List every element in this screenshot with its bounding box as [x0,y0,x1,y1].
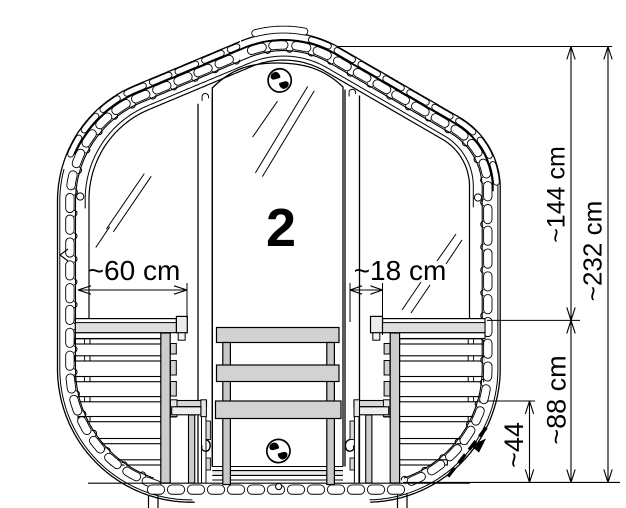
svg-text:~44: ~44 [499,422,529,468]
svg-text:~88 cm: ~88 cm [542,355,572,444]
svg-text:~144 cm: ~144 cm [543,146,571,243]
svg-text:2: 2 [266,198,296,258]
svg-text:~232 cm: ~232 cm [578,201,608,301]
svg-text:~18 cm: ~18 cm [354,255,447,286]
svg-text:~60 cm: ~60 cm [88,255,181,286]
